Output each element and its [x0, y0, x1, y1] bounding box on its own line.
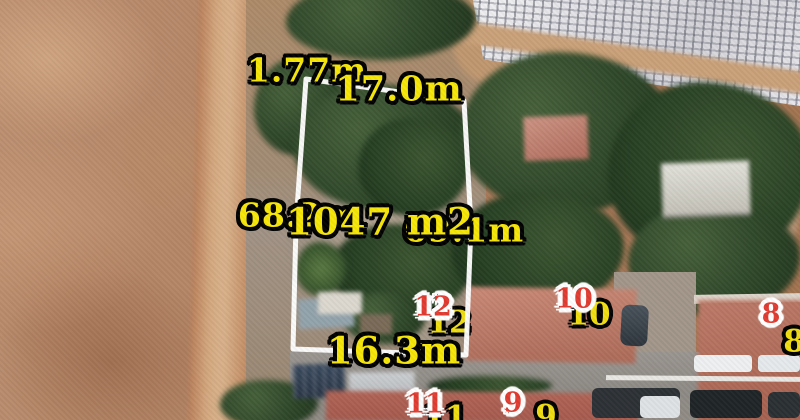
dimension-label-area: 1047 m2	[286, 204, 474, 241]
house-number-badge: 10	[555, 286, 593, 313]
dimension-label-top-width: 17.0m	[335, 72, 462, 107]
house-number-badge: 11	[406, 391, 444, 418]
house-number-badge: 8	[762, 301, 781, 328]
aerial-map[interactable]: 12 10 8 11 9 12 10 8 11 9 68.2m 69.1m 10…	[0, 0, 800, 420]
house-number-badge: 12	[414, 294, 452, 321]
dimension-label-bottom-width: 16.3m	[327, 333, 461, 370]
house-number-badge: 9	[504, 390, 523, 417]
